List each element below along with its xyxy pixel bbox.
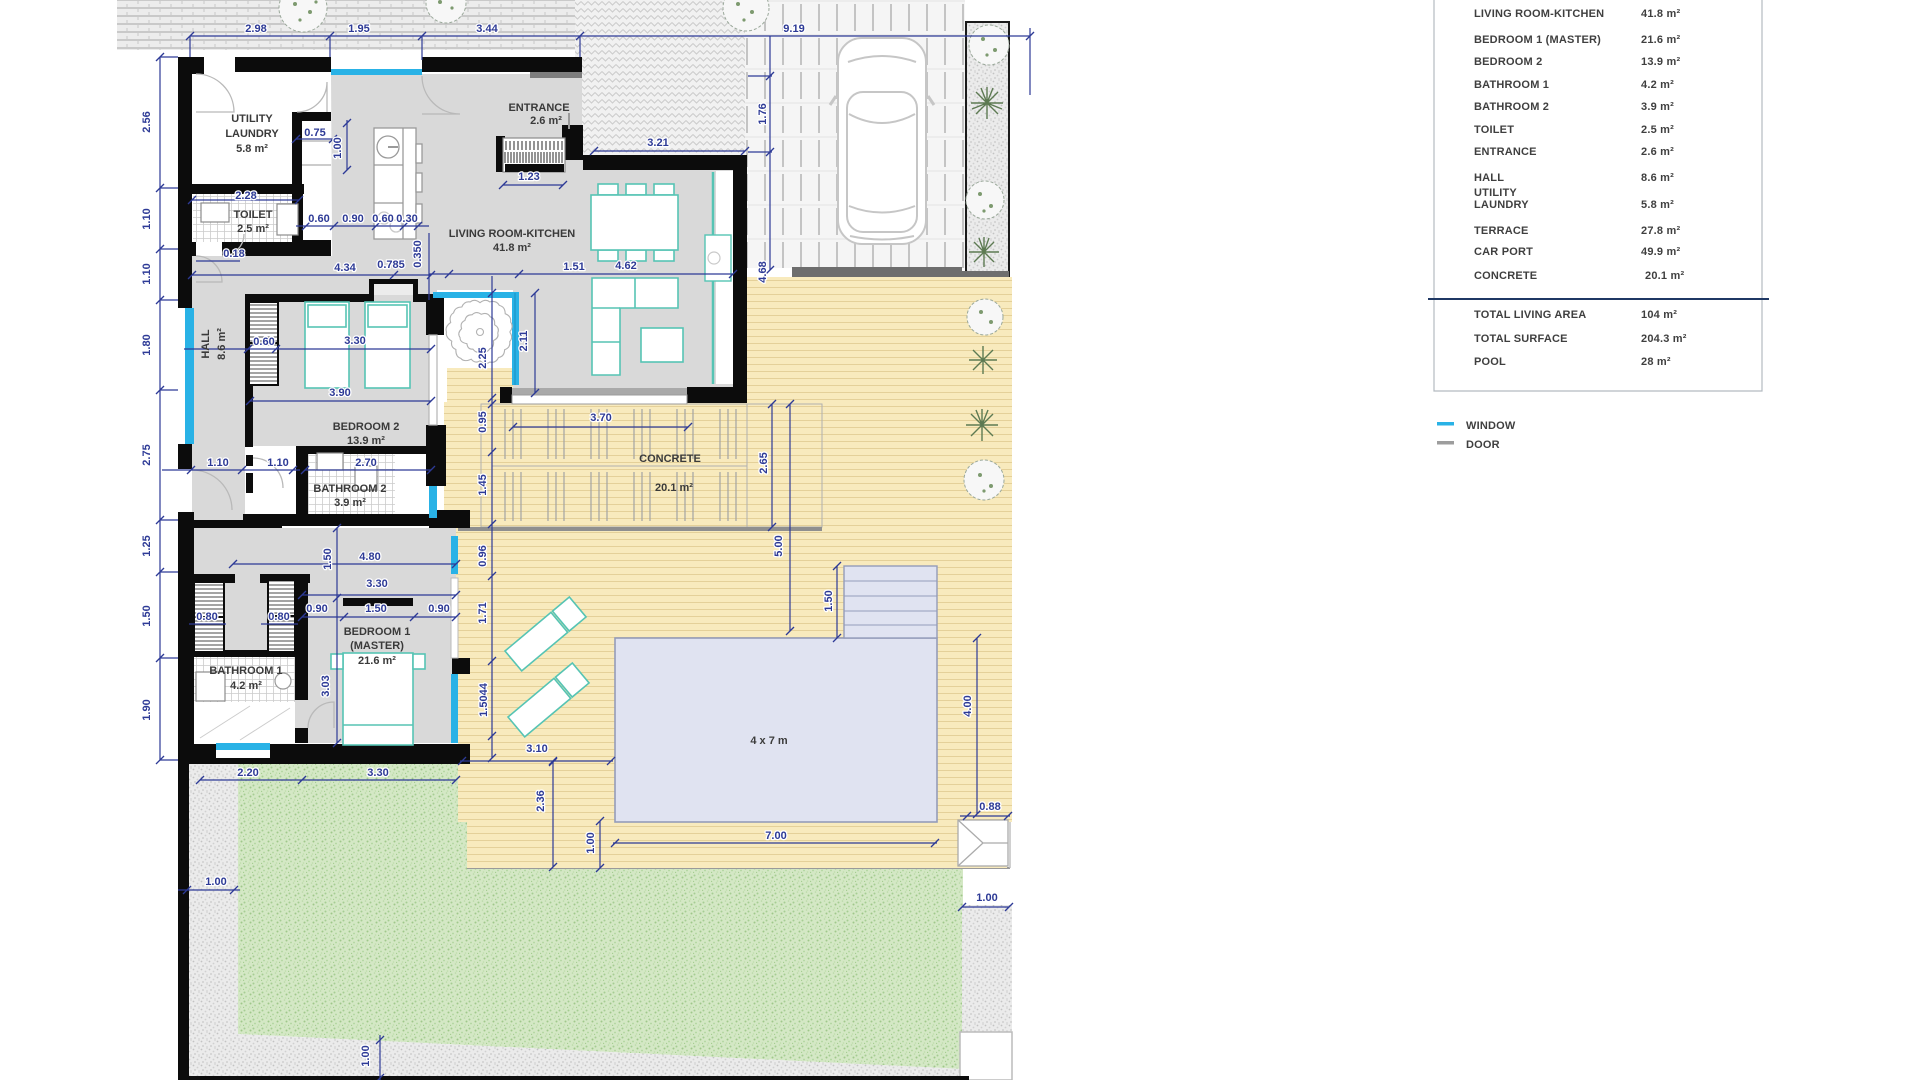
svg-text:9.19: 9.19 — [783, 23, 804, 35]
svg-text:8.6 m²: 8.6 m² — [216, 328, 228, 360]
svg-text:1.50: 1.50 — [365, 603, 386, 615]
svg-text:1.50: 1.50 — [322, 548, 334, 569]
svg-text:4.34: 4.34 — [334, 262, 356, 274]
svg-text:0.60: 0.60 — [253, 336, 274, 348]
svg-text:BEDROOM 1: BEDROOM 1 — [344, 626, 411, 638]
svg-text:1.23: 1.23 — [518, 171, 539, 183]
svg-text:1.50: 1.50 — [141, 605, 153, 626]
svg-text:ENTRANCE: ENTRANCE — [508, 102, 569, 114]
svg-text:3.90: 3.90 — [329, 387, 350, 399]
svg-text:3.21: 3.21 — [647, 137, 668, 149]
svg-text:1.45: 1.45 — [477, 474, 489, 495]
svg-text:1.5044: 1.5044 — [478, 682, 490, 717]
svg-text:0.90: 0.90 — [306, 603, 327, 615]
svg-text:3.10: 3.10 — [526, 743, 547, 755]
svg-text:2.5 m²: 2.5 m² — [237, 223, 269, 235]
svg-text:1.76: 1.76 — [757, 103, 769, 124]
svg-text:27.8 m²: 27.8 m² — [1641, 225, 1680, 237]
svg-text:2.56: 2.56 — [141, 111, 153, 132]
svg-text:0.90: 0.90 — [342, 213, 363, 225]
svg-text:4 x 7 m: 4 x 7 m — [750, 735, 788, 747]
svg-text:3.30: 3.30 — [344, 335, 365, 347]
svg-text:(MASTER): (MASTER) — [350, 640, 404, 652]
svg-text:BATHROOM 2: BATHROOM 2 — [313, 483, 386, 495]
svg-text:1.00: 1.00 — [332, 137, 344, 158]
svg-text:13.9 m²: 13.9 m² — [347, 435, 385, 447]
svg-text:2.5 m²: 2.5 m² — [1641, 124, 1674, 136]
svg-text:1.10: 1.10 — [207, 457, 228, 469]
svg-text:TOILET: TOILET — [1474, 124, 1514, 136]
svg-text:1.10: 1.10 — [141, 263, 153, 284]
svg-text:0.88: 0.88 — [979, 801, 1000, 813]
svg-text:2.11: 2.11 — [518, 331, 530, 352]
svg-text:0.96: 0.96 — [477, 545, 489, 566]
svg-text:0.90: 0.90 — [428, 603, 449, 615]
svg-text:2.6 m²: 2.6 m² — [1641, 146, 1674, 158]
svg-text:28 m²: 28 m² — [1641, 356, 1671, 368]
svg-text:3.9 m²: 3.9 m² — [1641, 101, 1674, 113]
svg-text:5.8 m²: 5.8 m² — [236, 143, 268, 155]
svg-text:1.51: 1.51 — [563, 261, 584, 273]
svg-text:8.6 m²: 8.6 m² — [1641, 172, 1674, 184]
svg-text:UTILITY: UTILITY — [1474, 187, 1517, 199]
svg-text:41.8 m²: 41.8 m² — [493, 242, 531, 254]
svg-text:3.03: 3.03 — [320, 675, 332, 696]
svg-text:1.10: 1.10 — [267, 457, 288, 469]
svg-text:LAUNDRY: LAUNDRY — [225, 128, 279, 140]
svg-text:TOTAL SURFACE: TOTAL SURFACE — [1474, 333, 1568, 345]
svg-text:1.50: 1.50 — [823, 590, 835, 611]
svg-text:2.75: 2.75 — [141, 444, 153, 465]
svg-text:2.65: 2.65 — [758, 452, 770, 473]
svg-text:20.1 m²: 20.1 m² — [655, 482, 693, 494]
svg-text:1.80: 1.80 — [141, 334, 153, 355]
svg-text:3.70: 3.70 — [590, 412, 611, 424]
svg-text:2.98: 2.98 — [245, 23, 266, 35]
svg-text:BEDROOM 1 (MASTER): BEDROOM 1 (MASTER) — [1474, 34, 1601, 46]
svg-text:2.6 m²: 2.6 m² — [530, 115, 562, 127]
svg-text:2.25: 2.25 — [477, 347, 489, 368]
svg-text:1.00: 1.00 — [205, 876, 226, 888]
svg-text:1.25: 1.25 — [141, 535, 153, 556]
svg-text:3.44: 3.44 — [476, 23, 498, 35]
svg-text:0.350: 0.350 — [412, 240, 424, 268]
svg-text:3.30: 3.30 — [366, 578, 387, 590]
svg-text:1.95: 1.95 — [348, 23, 369, 35]
svg-text:0.18: 0.18 — [223, 248, 244, 260]
svg-text:HALL: HALL — [1474, 172, 1504, 184]
svg-text:TERRACE: TERRACE — [1474, 225, 1529, 237]
svg-text:104 m²: 104 m² — [1641, 309, 1677, 321]
svg-text:0.30: 0.30 — [396, 213, 417, 225]
svg-text:LAUNDRY: LAUNDRY — [1474, 199, 1529, 211]
svg-text:1.00: 1.00 — [585, 832, 597, 853]
svg-text:4.2 m²: 4.2 m² — [1641, 79, 1674, 91]
svg-text:0.75: 0.75 — [304, 127, 325, 139]
svg-text:4.00: 4.00 — [962, 695, 974, 716]
svg-text:21.6 m²: 21.6 m² — [1641, 34, 1680, 46]
svg-text:4.62: 4.62 — [615, 260, 636, 272]
svg-text:2.28: 2.28 — [235, 190, 256, 202]
svg-text:2.70: 2.70 — [355, 457, 376, 469]
svg-text:3.9 m²: 3.9 m² — [334, 497, 366, 509]
svg-text:BATHROOM 2: BATHROOM 2 — [1474, 101, 1549, 113]
svg-text:4.80: 4.80 — [359, 551, 380, 563]
svg-text:0.80: 0.80 — [268, 611, 289, 623]
svg-text:0.80: 0.80 — [196, 611, 217, 623]
svg-text:WINDOW: WINDOW — [1466, 420, 1516, 432]
svg-text:13.9 m²: 13.9 m² — [1641, 56, 1680, 68]
svg-text:BATHROOM 1: BATHROOM 1 — [1474, 79, 1549, 91]
svg-text:POOL: POOL — [1474, 356, 1506, 368]
svg-text:5.00: 5.00 — [773, 535, 785, 556]
svg-text:0.95: 0.95 — [477, 411, 489, 432]
svg-text:0.60: 0.60 — [372, 213, 393, 225]
svg-text:TOTAL LIVING AREA: TOTAL LIVING AREA — [1474, 309, 1586, 321]
svg-text:0.60: 0.60 — [308, 213, 329, 225]
svg-text:0.785: 0.785 — [377, 259, 405, 271]
svg-text:LIVING ROOM-KITCHEN: LIVING ROOM-KITCHEN — [1474, 8, 1604, 20]
svg-text:21.6 m²: 21.6 m² — [358, 655, 396, 667]
svg-text:CONCRETE: CONCRETE — [639, 453, 701, 465]
svg-text:BATHROOM 1: BATHROOM 1 — [209, 665, 282, 677]
svg-text:ENTRANCE: ENTRANCE — [1474, 146, 1537, 158]
svg-text:1.00: 1.00 — [360, 1045, 372, 1066]
svg-text:1.90: 1.90 — [141, 699, 153, 720]
svg-text:LIVING ROOM-KITCHEN: LIVING ROOM-KITCHEN — [449, 228, 576, 240]
svg-text:4.68: 4.68 — [757, 261, 769, 282]
svg-text:4.2 m²: 4.2 m² — [230, 680, 262, 692]
svg-text:41.8 m²: 41.8 m² — [1641, 8, 1680, 20]
svg-text:7.00: 7.00 — [765, 830, 786, 842]
svg-text:BEDROOM 2: BEDROOM 2 — [1474, 56, 1542, 68]
svg-text:1.10: 1.10 — [141, 208, 153, 229]
svg-text:1.71: 1.71 — [477, 602, 489, 623]
svg-text:HALL: HALL — [200, 329, 212, 359]
svg-text:3.30: 3.30 — [367, 767, 388, 779]
svg-text:5.8 m²: 5.8 m² — [1641, 199, 1674, 211]
svg-text:49.9 m²: 49.9 m² — [1641, 246, 1680, 258]
svg-text:20.1 m²: 20.1 m² — [1645, 270, 1684, 282]
svg-text:1.00: 1.00 — [976, 892, 997, 904]
svg-text:UTILITY: UTILITY — [231, 113, 273, 125]
svg-text:2.20: 2.20 — [237, 767, 258, 779]
svg-text:2.36: 2.36 — [535, 790, 547, 811]
svg-text:204.3 m²: 204.3 m² — [1641, 333, 1687, 345]
svg-text:TOILET: TOILET — [234, 209, 273, 221]
svg-text:DOOR: DOOR — [1466, 439, 1500, 451]
svg-text:BEDROOM 2: BEDROOM 2 — [333, 421, 400, 433]
svg-text:CONCRETE: CONCRETE — [1474, 270, 1537, 282]
svg-text:CAR PORT: CAR PORT — [1474, 246, 1533, 258]
